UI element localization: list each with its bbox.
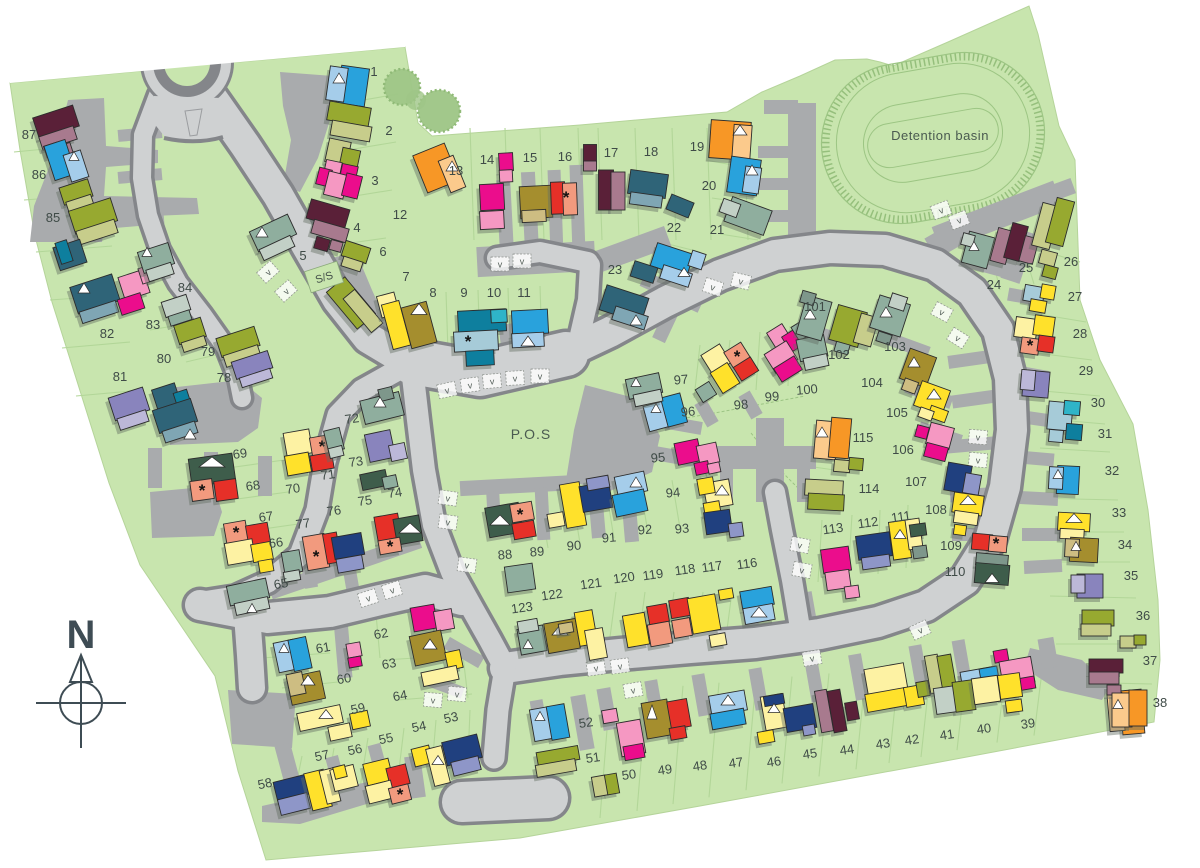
svg-text:92: 92	[637, 521, 653, 537]
svg-text:16: 16	[558, 149, 572, 164]
svg-text:25: 25	[1019, 260, 1033, 275]
svg-text:110: 110	[945, 564, 966, 579]
svg-text:47: 47	[728, 754, 744, 771]
svg-text:19: 19	[690, 139, 704, 154]
svg-text:22: 22	[667, 220, 681, 235]
svg-text:P.O.S: P.O.S	[511, 426, 552, 442]
svg-text:73: 73	[348, 453, 364, 470]
svg-text:13: 13	[449, 163, 463, 178]
svg-text:*: *	[233, 523, 240, 542]
svg-text:95: 95	[650, 449, 666, 465]
svg-text:87: 87	[22, 127, 36, 142]
svg-text:N: N	[67, 613, 96, 657]
svg-text:*: *	[563, 188, 570, 207]
svg-text:5: 5	[299, 248, 306, 263]
svg-text:67: 67	[258, 508, 274, 525]
svg-text:45: 45	[802, 745, 818, 762]
svg-text:122: 122	[540, 586, 564, 604]
svg-text:3: 3	[371, 173, 378, 188]
svg-text:77: 77	[295, 515, 311, 532]
svg-text:104: 104	[861, 375, 883, 390]
svg-text:102: 102	[828, 347, 850, 362]
svg-text:32: 32	[1105, 463, 1119, 478]
svg-text:98: 98	[733, 396, 749, 412]
svg-text:109: 109	[940, 538, 962, 553]
svg-text:69: 69	[232, 445, 248, 462]
svg-text:68: 68	[245, 477, 261, 494]
svg-text:94: 94	[665, 484, 681, 500]
svg-text:15: 15	[523, 150, 537, 165]
svg-text:v: v	[498, 260, 503, 270]
svg-text:26: 26	[1064, 254, 1078, 269]
svg-text:52: 52	[578, 714, 594, 731]
svg-text:35: 35	[1124, 568, 1138, 583]
svg-text:83: 83	[146, 317, 160, 332]
svg-text:55: 55	[377, 730, 394, 748]
svg-text:38: 38	[1153, 695, 1167, 710]
svg-text:103: 103	[884, 339, 906, 354]
svg-text:58: 58	[256, 775, 273, 793]
svg-text:106: 106	[892, 442, 914, 457]
svg-text:61: 61	[314, 639, 331, 656]
svg-text:72: 72	[344, 410, 360, 427]
svg-text:36: 36	[1136, 608, 1150, 623]
svg-text:11: 11	[517, 285, 531, 300]
svg-text:Detention basin: Detention basin	[891, 128, 989, 143]
svg-text:4: 4	[353, 220, 360, 235]
svg-text:7: 7	[402, 269, 409, 284]
svg-text:64: 64	[391, 687, 408, 704]
svg-text:9: 9	[460, 285, 467, 300]
svg-text:115: 115	[853, 430, 874, 445]
svg-text:10: 10	[487, 285, 501, 300]
svg-text:17: 17	[604, 145, 618, 160]
svg-text:*: *	[199, 481, 206, 500]
svg-text:31: 31	[1098, 426, 1112, 441]
svg-text:85: 85	[46, 210, 60, 225]
svg-text:54: 54	[410, 718, 427, 736]
svg-text:70: 70	[285, 480, 301, 497]
svg-text:113: 113	[822, 520, 845, 538]
svg-text:39: 39	[1020, 715, 1036, 732]
svg-text:75: 75	[357, 492, 373, 509]
svg-text:66: 66	[268, 534, 284, 551]
svg-text:97: 97	[673, 371, 689, 387]
svg-text:120: 120	[612, 569, 636, 587]
svg-text:62: 62	[372, 625, 389, 642]
svg-text:81: 81	[113, 369, 127, 384]
svg-text:107: 107	[905, 474, 927, 489]
svg-text:53: 53	[442, 709, 459, 727]
svg-text:90: 90	[566, 537, 582, 553]
svg-text:37: 37	[1143, 653, 1157, 668]
svg-text:76: 76	[326, 502, 342, 519]
svg-text:28: 28	[1073, 326, 1087, 341]
svg-text:42: 42	[904, 731, 920, 748]
svg-text:34: 34	[1118, 537, 1132, 552]
svg-text:27: 27	[1068, 289, 1082, 304]
svg-text:112: 112	[857, 514, 880, 532]
svg-text:v: v	[520, 257, 525, 267]
svg-text:29: 29	[1079, 363, 1093, 378]
svg-text:80: 80	[157, 351, 171, 366]
svg-text:*: *	[313, 547, 320, 566]
svg-text:20: 20	[702, 178, 716, 193]
svg-text:118: 118	[674, 561, 697, 579]
svg-text:63: 63	[380, 655, 397, 672]
svg-text:24: 24	[987, 277, 1001, 292]
svg-text:116: 116	[736, 555, 759, 573]
svg-text:v: v	[538, 372, 543, 382]
svg-text:18: 18	[644, 144, 658, 159]
svg-text:101: 101	[804, 299, 826, 314]
svg-text:8: 8	[429, 285, 436, 300]
svg-text:57: 57	[313, 747, 330, 765]
svg-text:*: *	[517, 505, 524, 524]
svg-text:33: 33	[1112, 505, 1126, 520]
svg-text:43: 43	[875, 735, 891, 752]
svg-text:51: 51	[585, 749, 601, 766]
svg-text:14: 14	[480, 152, 494, 167]
svg-text:84: 84	[178, 280, 192, 295]
svg-text:93: 93	[674, 520, 690, 536]
svg-text:*: *	[387, 537, 394, 556]
svg-text:1: 1	[370, 64, 377, 79]
svg-text:88: 88	[497, 546, 513, 562]
svg-text:105: 105	[886, 405, 908, 420]
svg-text:71: 71	[320, 466, 336, 483]
svg-text:108: 108	[925, 502, 947, 517]
svg-text:*: *	[465, 332, 472, 351]
svg-text:41: 41	[939, 726, 955, 743]
svg-text:86: 86	[32, 167, 46, 182]
svg-text:*: *	[397, 785, 404, 804]
svg-text:*: *	[734, 347, 741, 366]
svg-text:65: 65	[272, 575, 289, 592]
svg-text:2: 2	[385, 123, 392, 138]
svg-text:40: 40	[976, 720, 992, 737]
svg-text:30: 30	[1091, 395, 1105, 410]
svg-text:*: *	[993, 534, 1000, 553]
svg-text:49: 49	[657, 761, 673, 778]
svg-text:*: *	[1027, 336, 1034, 355]
svg-text:121: 121	[579, 575, 603, 593]
svg-text:12: 12	[393, 207, 407, 222]
svg-text:99: 99	[764, 388, 780, 404]
svg-text:6: 6	[379, 244, 386, 259]
svg-text:48: 48	[692, 757, 708, 774]
svg-text:21: 21	[710, 222, 724, 237]
svg-text:100: 100	[795, 381, 818, 398]
svg-text:123: 123	[510, 599, 534, 617]
svg-text:23: 23	[608, 262, 622, 277]
svg-text:78: 78	[217, 370, 231, 385]
svg-text:79: 79	[201, 344, 215, 359]
svg-text:46: 46	[766, 753, 782, 770]
svg-text:60: 60	[335, 670, 352, 687]
svg-text:91: 91	[601, 529, 617, 545]
svg-text:50: 50	[621, 766, 637, 783]
svg-text:82: 82	[100, 326, 114, 341]
svg-text:117: 117	[701, 558, 724, 576]
svg-text:56: 56	[346, 741, 363, 759]
svg-text:111: 111	[890, 508, 912, 526]
svg-text:44: 44	[839, 741, 855, 758]
svg-text:89: 89	[529, 543, 545, 559]
svg-text:114: 114	[859, 481, 880, 496]
svg-text:59: 59	[349, 700, 366, 718]
svg-text:119: 119	[642, 566, 665, 584]
svg-text:74: 74	[387, 484, 403, 501]
svg-text:96: 96	[680, 403, 696, 419]
